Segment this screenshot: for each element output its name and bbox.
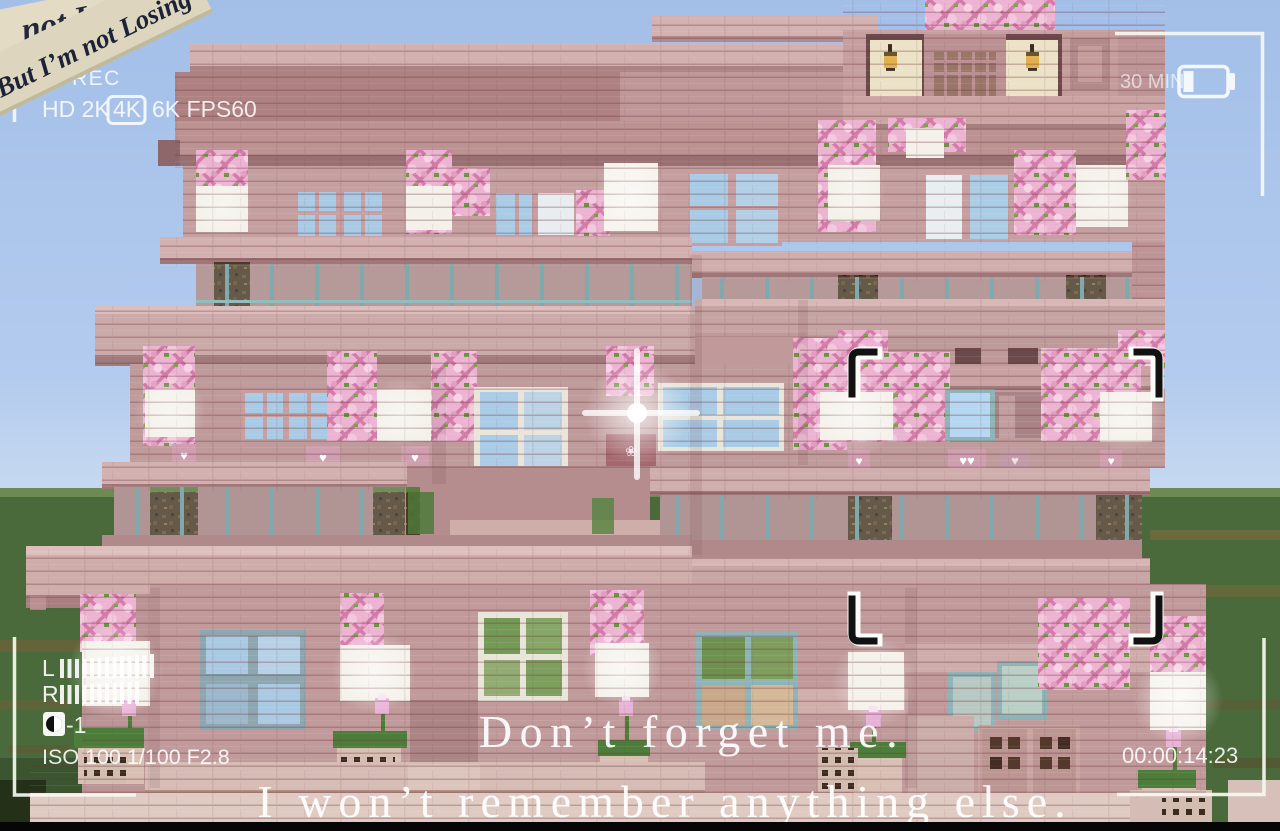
svg-text:4K: 4K [113,96,142,122]
svg-text:L: L [42,655,55,681]
svg-text:ISO 100 1/100 F2.8: ISO 100 1/100 F2.8 [42,745,230,769]
svg-text:Don’t forget me.: Don’t forget me. [479,706,905,757]
svg-text:R: R [42,681,59,707]
svg-text:00:00:14:23: 00:00:14:23 [1122,743,1238,768]
svg-text:I won’t remember anything else: I won’t remember anything else. [257,776,1072,827]
svg-text:30 MIN: 30 MIN [1120,71,1184,93]
svg-text:-1: -1 [66,712,86,738]
svg-text:HD 2K: HD 2K [42,96,110,122]
svg-text:6K FPS60: 6K FPS60 [152,96,257,122]
